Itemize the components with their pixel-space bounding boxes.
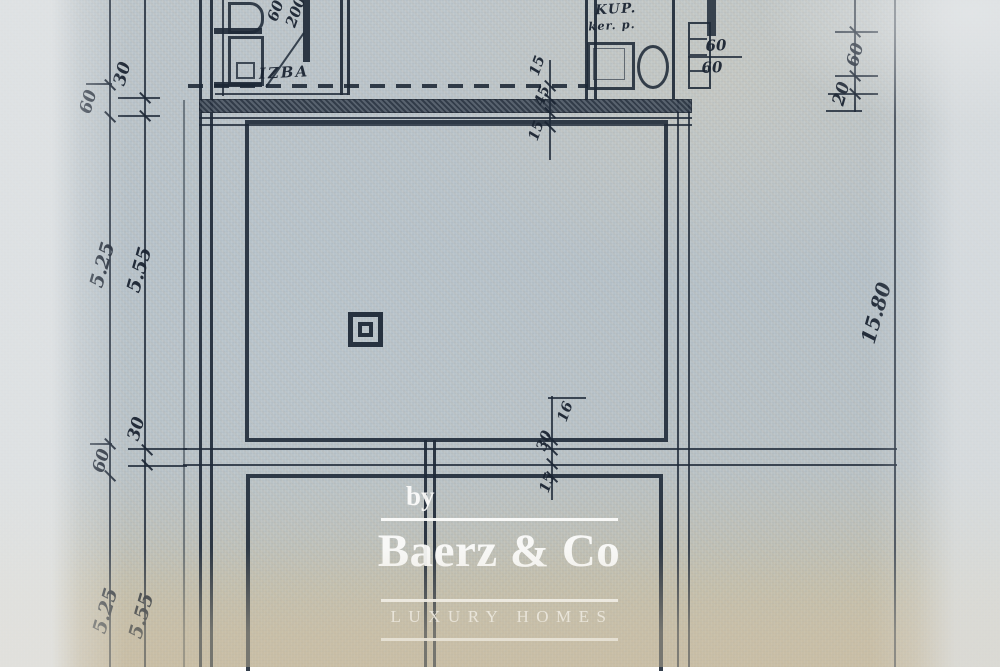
wall-izba-bottom-line (215, 93, 348, 95)
wall-izba-right-b (347, 0, 350, 95)
dim-label: 60 (845, 41, 868, 68)
watermark-by: by (406, 481, 435, 512)
toilet-symbol-wc (228, 2, 264, 34)
dim-seg (90, 443, 112, 445)
dim-seg (118, 97, 160, 99)
watermark-rule-bottom (381, 638, 618, 641)
watermark-brand: Baerz & Co (377, 524, 621, 578)
wall-kup-right-a (672, 0, 675, 100)
dim-seg (835, 75, 878, 77)
dim-label: 5.25 (90, 586, 121, 636)
dim-label: 15 (528, 54, 549, 78)
facade-wall-band (199, 99, 692, 113)
watermark-tagline: LUXURY HOMES (378, 607, 626, 627)
wall-right-thin-2 (688, 100, 690, 667)
watermark-rule-middle (381, 599, 618, 602)
shower-inner-detail (593, 48, 625, 80)
dimension-line-left-1 (109, 0, 111, 667)
dim-label: 15.80 (858, 280, 894, 346)
dimension-line-right-edge (894, 0, 896, 667)
mid-horizontal-line-2 (183, 464, 897, 466)
tick-mark (141, 444, 153, 456)
dim-label: 60 (78, 88, 101, 115)
kup-dim-top: 60 (705, 38, 727, 54)
dim-seg (118, 115, 160, 117)
blueprint-scan: 30 60 5.25 5.55 30 60 5.25 5.55 60 20 15… (0, 0, 1000, 667)
dim-label: 5.55 (126, 591, 157, 641)
room-label-kup: KUP. (595, 2, 637, 18)
room-main (245, 120, 668, 442)
dim-chain-upper (549, 60, 551, 160)
wall-right-thin-1 (677, 100, 679, 667)
wall-top-right-stub (707, 0, 716, 36)
sink-inner-detail (236, 62, 255, 79)
dim-seg-underline (826, 110, 862, 112)
wall-izba-right-a (340, 0, 343, 95)
dim-seg (128, 465, 187, 467)
dim-label: 20 (831, 80, 854, 107)
toilet-symbol-kup (637, 45, 669, 89)
dim-seg (86, 83, 112, 85)
column-symbol-inner (358, 322, 373, 337)
room-label-izba: IZBA (258, 64, 309, 82)
kup-dim-bottom: 60 (701, 60, 723, 76)
line-left-secondary (183, 100, 185, 667)
dim-label: 30 (112, 60, 135, 87)
dim-seg-overline (548, 397, 586, 399)
room-label-kup-sub: ker. p. (588, 19, 636, 33)
dim-seg (128, 448, 187, 450)
dim-label: 5.25 (87, 240, 118, 290)
dashed-terrace-line (188, 84, 588, 88)
watermark-rule-top (381, 518, 618, 521)
dim-label: 5.55 (124, 245, 155, 295)
dim-seg (835, 31, 878, 33)
